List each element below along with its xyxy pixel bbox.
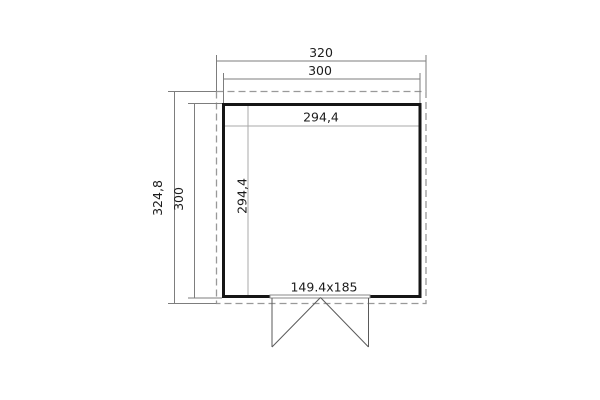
- dimension-label-roof-depth: 324,8: [150, 180, 165, 216]
- floor-plan-page: 320 300 324,8 300 294,4: [0, 0, 600, 400]
- building-walls: [224, 105, 421, 297]
- dimension-label-wall-depth: 300: [171, 187, 186, 211]
- interior-dimension-lines: 294,4 294,4: [225, 106, 419, 295]
- door-leaf-right-swing: [321, 298, 369, 348]
- dimension-label-interior-depth: 294,4: [235, 178, 250, 214]
- dimension-label-roof-width: 320: [309, 45, 333, 60]
- dimension-label-door-size: 149.4x185: [290, 280, 357, 295]
- dimension-wall-depth: 300: [171, 104, 222, 299]
- floor-plan-drawing: 320 300 324,8 300 294,4: [0, 0, 600, 400]
- door-swing-symbol: [272, 298, 369, 348]
- dimension-label-interior-width: 294,4: [303, 110, 339, 125]
- door-leaf-left-swing: [272, 298, 321, 348]
- dimension-wall-width: 300: [224, 63, 421, 103]
- dimension-label-wall-width: 300: [308, 63, 332, 78]
